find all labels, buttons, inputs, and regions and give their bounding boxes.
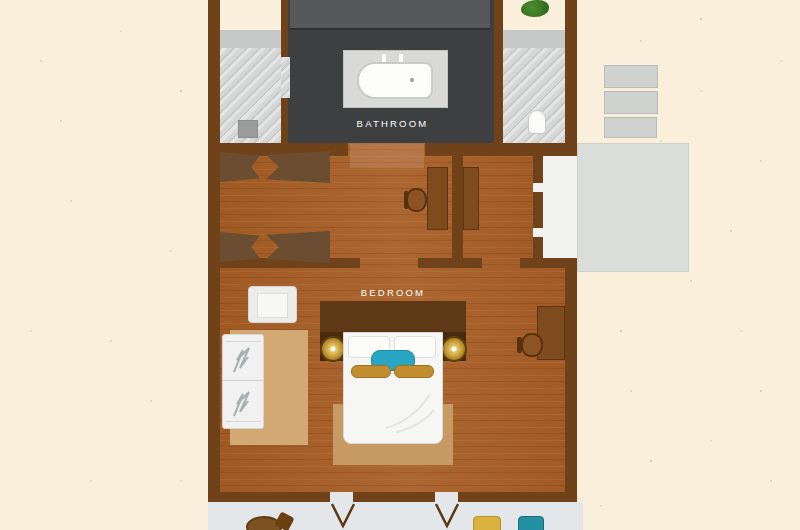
door-opening-right	[435, 492, 458, 502]
dressing-right-wall-a	[533, 156, 543, 183]
partition-wall	[452, 156, 463, 262]
bedroom-label: BEDROOM	[353, 287, 433, 299]
sand-speckles	[0, 0, 2, 2]
shower-stool	[238, 120, 258, 138]
daybed-divider	[223, 380, 263, 381]
terrace-step-2	[604, 91, 658, 114]
sun-cushion-teal	[518, 516, 544, 530]
shower-court	[220, 0, 281, 30]
armchair-cushion	[257, 293, 288, 318]
bedside-lamp-right	[441, 336, 467, 362]
daybed-squiggle-bottom	[231, 388, 255, 422]
outer-wall-left	[208, 0, 220, 502]
door-swing-right	[434, 502, 460, 530]
door-opening-left	[330, 492, 353, 502]
gold-bolster-right	[394, 365, 434, 378]
bottom-wall-left	[208, 492, 330, 502]
terrace-step-3	[604, 117, 657, 138]
floor-plan: BATHROOM BEDROOM	[0, 0, 800, 530]
outer-wall-right-lower	[565, 262, 577, 502]
door-swing-left	[330, 502, 356, 530]
duvet-fold-lines	[380, 388, 440, 436]
right-wall-opening-a	[533, 183, 543, 192]
dressing-right-wall-c	[533, 237, 543, 258]
headboard	[320, 301, 466, 332]
toilet	[528, 110, 546, 134]
dressing-right-wall-b	[533, 192, 543, 228]
wardrobe-counter	[463, 167, 479, 230]
shower-glass-band	[220, 30, 281, 48]
gold-bolster-left	[351, 365, 391, 378]
vanity-counter	[290, 0, 490, 30]
bath-tap-right	[399, 54, 403, 62]
dressing-desk	[427, 167, 448, 230]
bottom-wall-right	[458, 492, 577, 502]
bath-drain	[410, 78, 414, 82]
outer-wall-right-upper	[565, 0, 577, 150]
shower-niche	[281, 57, 290, 98]
side-walkway	[543, 150, 577, 270]
divider-wall-mid	[418, 258, 482, 268]
doorway-threshold	[350, 144, 424, 168]
bathtub	[357, 62, 433, 99]
terrace-step-1	[604, 65, 658, 88]
bedroom-desk-chair	[521, 333, 543, 357]
daybed-headrest-line	[225, 341, 261, 342]
dressing-desk-chair	[406, 188, 427, 212]
bottom-wall-mid	[353, 492, 435, 502]
bathroom-label: BATHROOM	[330, 118, 455, 130]
terrace-platform	[577, 143, 689, 272]
toilet-glass-band	[503, 30, 565, 48]
partition-wall-cap	[446, 148, 470, 156]
toilet-partition-wall	[494, 0, 503, 143]
bath-tap-left	[382, 54, 386, 62]
right-wall-opening-b	[533, 228, 543, 237]
daybed-squiggle-top	[231, 344, 255, 378]
sun-cushion-gold	[473, 516, 501, 530]
